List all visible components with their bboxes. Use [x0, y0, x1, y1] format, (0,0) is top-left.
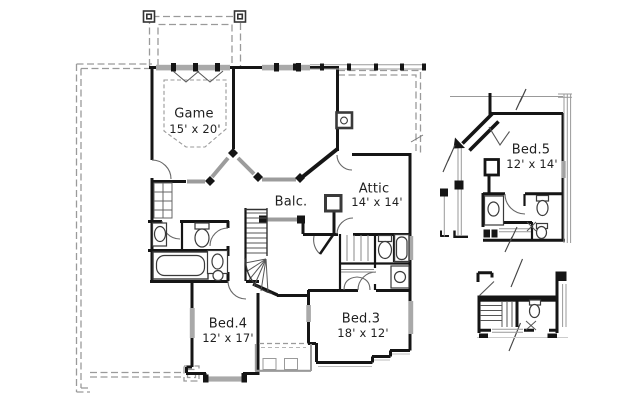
- chase-box-icon: [337, 113, 353, 129]
- window-seat-nook: [255, 344, 311, 372]
- room-label-game: Game: [174, 107, 214, 122]
- toilet-fixture: [537, 224, 548, 239]
- room-dims-attic: 14' x 14': [351, 195, 403, 209]
- floor-plan-drawing: [0, 0, 620, 415]
- sink-fixture: [391, 266, 409, 288]
- room-dims-bed3: 18' x 12': [337, 326, 389, 340]
- room-dims-game: 15' x 20': [169, 122, 221, 136]
- balcony-railing: [187, 158, 299, 220]
- room-dims-bed5: 12' x 14': [506, 157, 558, 171]
- porch-post: [440, 189, 448, 197]
- room-label-bed3: Bed.3: [342, 312, 381, 327]
- toilet-fixture: [195, 223, 209, 247]
- room-label-bed4: Bed.4: [209, 317, 248, 332]
- sink-fixture: [485, 196, 504, 225]
- break-line: [516, 89, 526, 110]
- floor-plan-canvas: Game 15' x 20' Balc. Attic 14' x 14' Bed…: [0, 0, 620, 415]
- stairs: [480, 302, 512, 327]
- column-box: [485, 160, 499, 176]
- door-arc: [505, 194, 525, 214]
- tub-fixture: [395, 235, 410, 262]
- column-box: [326, 196, 342, 212]
- thick-wall-band: [478, 296, 559, 302]
- toilet-fixture: [530, 300, 541, 318]
- toilet-fixture: [537, 196, 549, 216]
- vanity-fixture: [208, 251, 228, 281]
- inset-lower: [477, 259, 568, 351]
- break-line: [443, 145, 455, 172]
- tub-fixture: [153, 252, 208, 279]
- room-label-bed5: Bed.5: [512, 143, 551, 158]
- toilet-fixture: [379, 236, 392, 259]
- linen-shelves: [154, 183, 172, 218]
- roof-tick: [411, 135, 423, 142]
- hall-door-leaf: [320, 235, 333, 254]
- door-x-mark: [526, 321, 536, 330]
- foundation-lines: [318, 354, 410, 367]
- room-label-balcony: Balc.: [275, 195, 308, 210]
- railing-posts: [205, 148, 305, 224]
- porch-post: [455, 181, 464, 190]
- closet-shelf-lines: [341, 235, 374, 272]
- sink-fixture: [153, 223, 167, 246]
- room-dims-bed4: 12' x 17': [202, 331, 254, 345]
- break-line: [511, 259, 523, 287]
